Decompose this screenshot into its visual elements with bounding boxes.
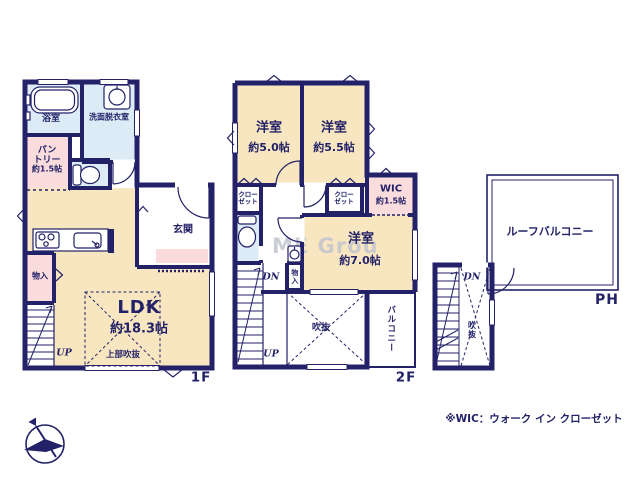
- label-dn-ph: DN: [464, 273, 481, 284]
- label-ldk-size: 約18.3帖: [110, 323, 168, 338]
- label-room-c-size: 約7.0帖: [339, 255, 381, 267]
- label-closet-2: クロー ゼット: [334, 192, 354, 207]
- label-wic-size: 約1.5帖: [376, 198, 406, 207]
- label-roof-balcony: ルーフバルコニー: [506, 226, 593, 238]
- floorplan-page: ME Grou: [0, 0, 640, 480]
- label-room-a-size: 約5.0帖: [248, 142, 290, 154]
- label-pantry-line1: パン: [38, 145, 56, 155]
- label-ldk: LDK: [117, 298, 160, 318]
- label-balcony: バルコニー: [385, 305, 395, 353]
- label-open-ceiling: 上部吹抜: [106, 351, 140, 361]
- compass-north-icon: [24, 418, 64, 464]
- toilet-1f-icon: [73, 165, 100, 185]
- label-up-2f: UP: [263, 350, 278, 361]
- label-void-ph: 吹抜: [467, 321, 476, 339]
- label-pantry: パン トリー 約1.5帖: [32, 145, 62, 174]
- label-floor-ph: PH: [595, 293, 619, 309]
- label-room-a: 洋室: [256, 122, 282, 137]
- label-entrance: 玄関: [173, 224, 193, 235]
- label-closet-1: クロー ゼット: [238, 192, 258, 207]
- label-floor-2f: 2F: [396, 370, 417, 385]
- floorplan-canvas: ME Grou: [0, 0, 640, 480]
- label-closet-1-line2: ゼット: [238, 199, 258, 206]
- label-closet-2-line2: ゼット: [334, 199, 354, 206]
- label-bath: 浴室: [42, 114, 60, 124]
- footnote-wic: ※WIC：ウォーク イン クローゼット: [445, 414, 622, 426]
- label-wic: WIC: [380, 183, 402, 194]
- kitchen-counter-icon: [33, 229, 114, 253]
- label-room-b-size: 約5.5帖: [313, 142, 355, 154]
- hall-basin-icon: [288, 246, 301, 262]
- label-storage-2f: 物入: [290, 269, 298, 285]
- washbasin-icon: [104, 85, 130, 109]
- label-room-b: 洋室: [321, 122, 347, 137]
- label-washroom: 洗面脱衣室: [89, 114, 129, 123]
- label-storage-1f: 物入: [32, 273, 48, 282]
- label-room-c: 洋室: [348, 233, 374, 248]
- label-floor-1f: 1F: [191, 370, 212, 385]
- label-void-2f: 吹抜: [312, 323, 330, 333]
- label-up-1f: UP: [56, 349, 71, 360]
- toilet-2f-icon: [238, 216, 256, 247]
- label-dn-2f: DN: [263, 273, 280, 284]
- label-pantry-size: 約1.5帖: [32, 166, 62, 175]
